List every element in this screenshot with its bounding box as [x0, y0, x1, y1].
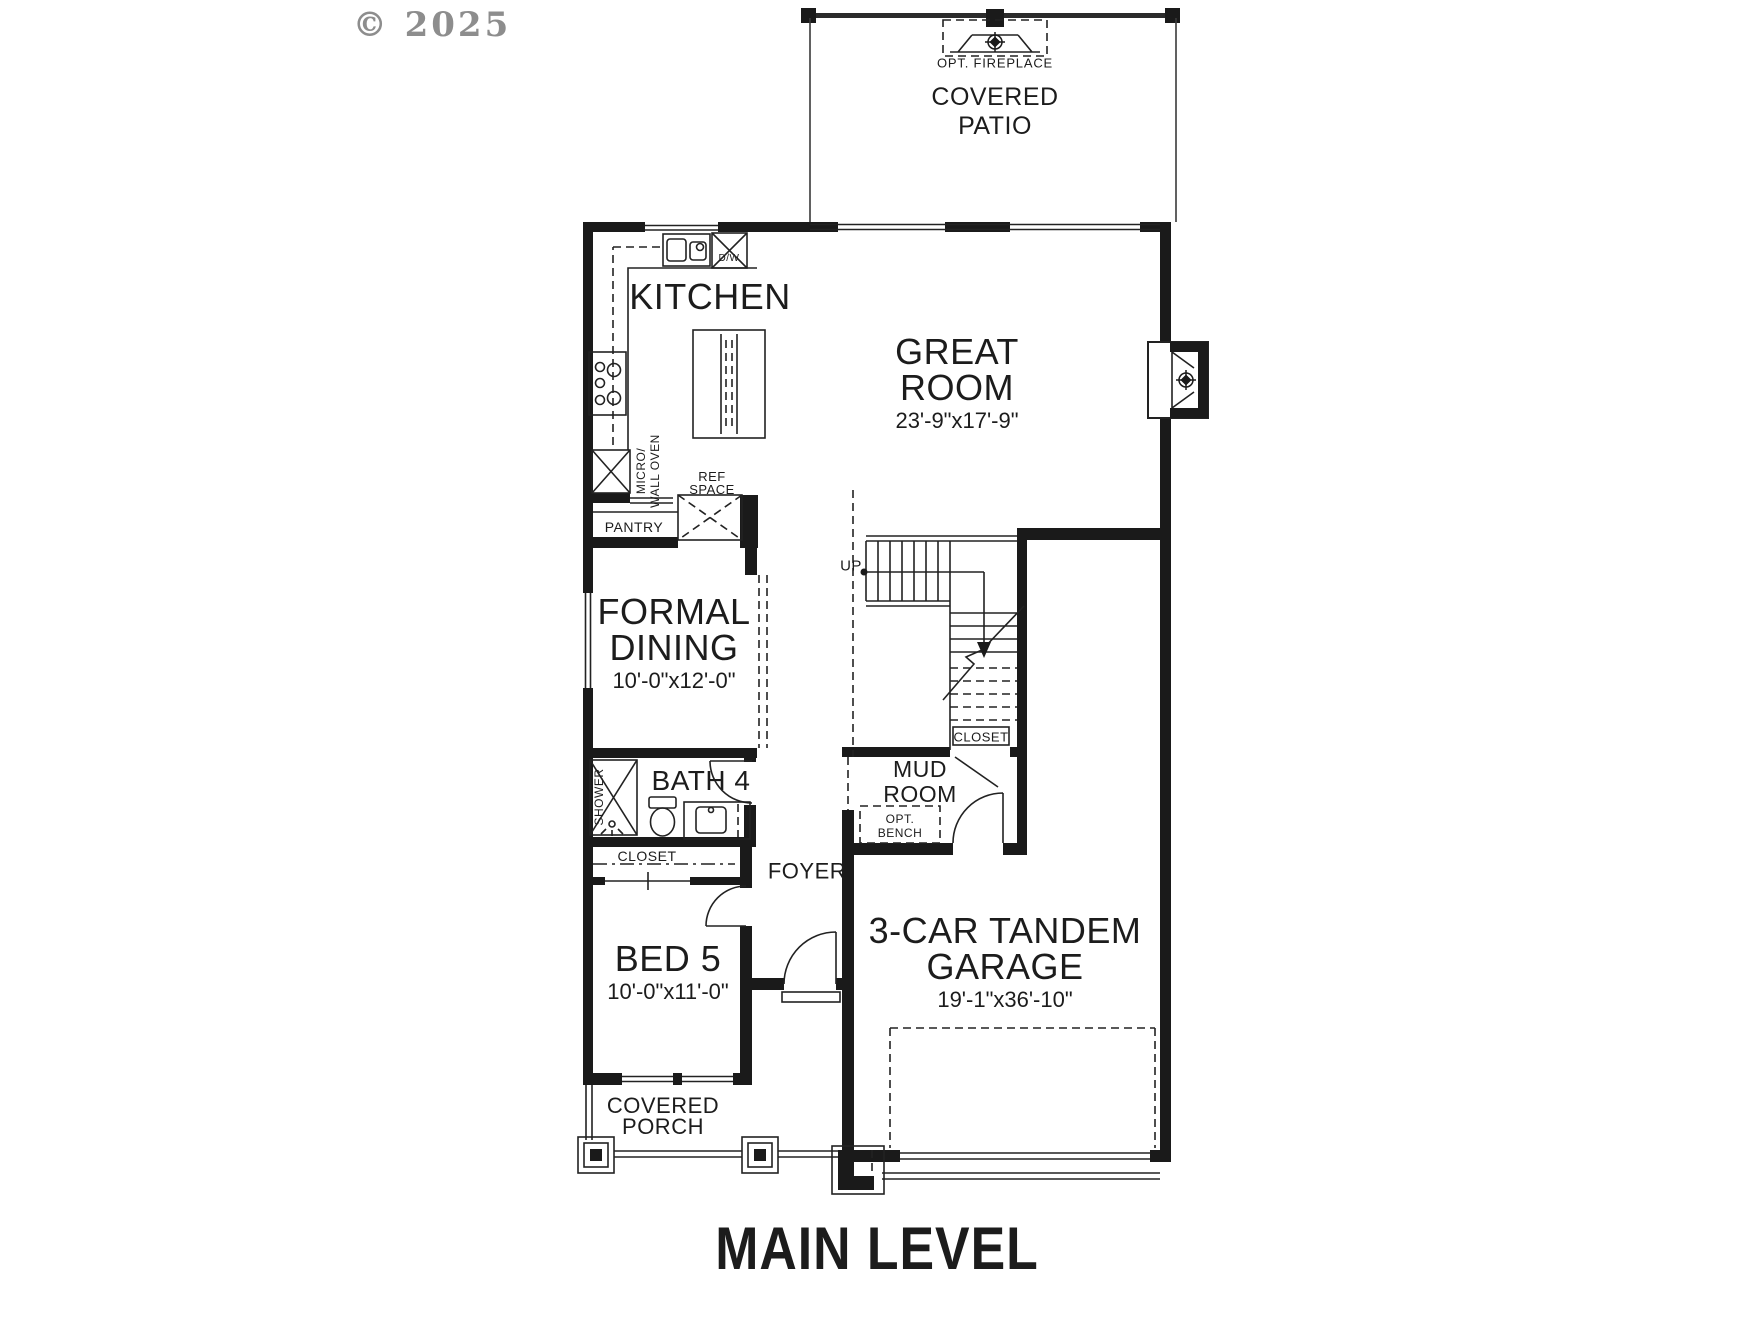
ref-space-label: REF SPACE — [689, 470, 735, 496]
plan-title: MAIN LEVEL — [715, 1219, 1039, 1279]
room-foyer: FOYER — [768, 861, 846, 882]
floorplan-drawing — [0, 0, 1760, 1320]
room-mud-room: MUD ROOM — [883, 757, 957, 807]
bed5-closet-label: CLOSET — [617, 849, 676, 863]
room-garage: 3-CAR TANDEM GARAGE 19'-1"x36'-10" — [869, 913, 1142, 1015]
room-bath4: BATH 4 — [652, 767, 751, 795]
opt-fireplace-label: OPT. FIREPLACE — [937, 57, 1053, 70]
stairs-up-label: UP — [840, 559, 862, 574]
room-bed5: BED 5 10'-0"x11'-0" — [607, 941, 728, 1007]
floorplan-page: © 2025 OPT. FIREPLACE COVERED PATIO KITC… — [0, 0, 1760, 1320]
room-covered-porch: COVERED PORCH — [607, 1095, 719, 1137]
stairs-closet-label: CLOSET — [953, 731, 1008, 744]
micro-wall-oven-label: MICRO/ WALL OVEN — [634, 434, 662, 508]
copyright-watermark: © 2025 — [353, 8, 511, 42]
room-great-room: GREAT ROOM 23'-9"x17'-9" — [895, 334, 1019, 436]
dishwasher-label: D/W — [719, 254, 740, 264]
room-kitchen: KITCHEN — [629, 279, 791, 315]
opt-bench-label: OPT. BENCH — [878, 812, 923, 840]
room-covered-patio: COVERED PATIO — [931, 83, 1058, 141]
shower-label: SHOWER — [592, 769, 606, 826]
pantry-label: PANTRY — [605, 520, 664, 534]
room-formal-dining: FORMAL DINING 10'-0"x12'-0" — [597, 594, 750, 696]
